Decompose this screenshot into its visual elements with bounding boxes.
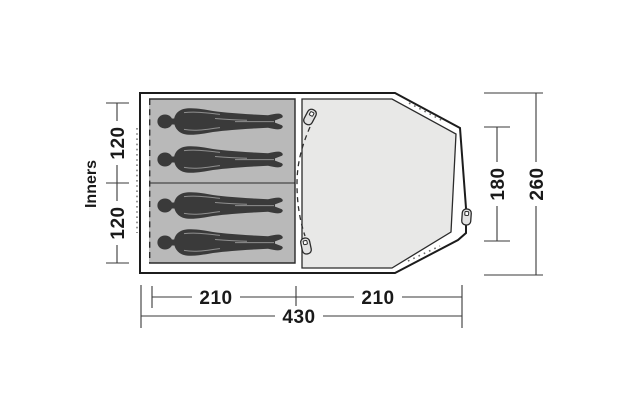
inners-label: Inners xyxy=(83,160,100,208)
dim-inner-bottom-width-label: 120 xyxy=(108,206,129,239)
dim-inner-top-width-label: 120 xyxy=(108,126,129,159)
dim-total-length-label: 430 xyxy=(282,307,315,328)
living-area-groundsheet xyxy=(302,99,456,268)
dim-living-depth-label: 180 xyxy=(488,167,509,200)
tent-floorplan-svg: 120 120 Inners 180 260 210 210 430 xyxy=(0,0,640,400)
dim-total-depth-label: 260 xyxy=(527,167,548,200)
tent-floorplan-diagram: 120 120 Inners 180 260 210 210 430 xyxy=(0,0,640,400)
zipper-pull-front-icon xyxy=(461,209,471,226)
dim-living-length-label: 210 xyxy=(361,288,394,309)
dim-inner-length-label: 210 xyxy=(199,288,232,309)
